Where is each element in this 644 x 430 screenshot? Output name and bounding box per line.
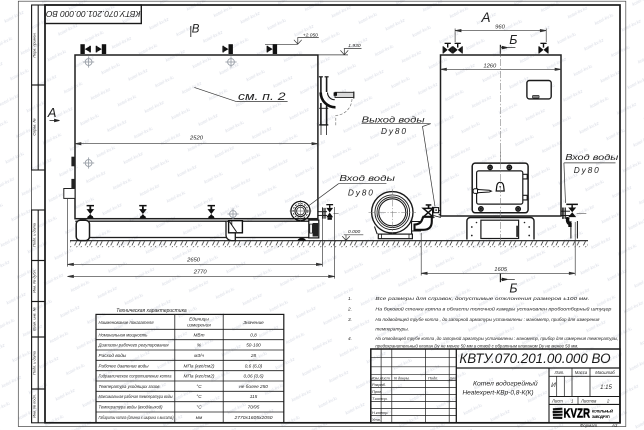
svg-text:Подп.: Подп.: [428, 375, 438, 380]
svg-text:Диапазон рабочего регулировани: Диапазон рабочего регулирования: [98, 343, 169, 348]
svg-text:2770: 2770: [193, 270, 208, 276]
svg-text:KVZR: KVZR: [564, 405, 591, 420]
svg-text:Инв. № дубл.: Инв. № дубл.: [33, 269, 37, 292]
svg-text:Наименование показателя: Наименование показателя: [99, 320, 154, 325]
svg-text:МПа (кгс/см2): МПа (кгс/см2): [184, 363, 215, 368]
svg-text:960: 960: [495, 24, 505, 30]
svg-text:0.000: 0.000: [348, 229, 361, 235]
svg-text:Техническая характеристика: Техническая характеристика: [116, 308, 187, 314]
svg-text:Пров.: Пров.: [372, 389, 382, 394]
svg-text:Температура воды (вход/выход): Температура воды (вход/выход): [99, 405, 163, 410]
svg-text:2520: 2520: [189, 136, 204, 142]
svg-text:На подводящей трубе котла , д: На подводящей трубе котла , до запорной …: [375, 316, 599, 322]
svg-text:не более 250: не более 250: [239, 384, 268, 389]
svg-text:Т.контр.: Т.контр.: [372, 396, 388, 401]
svg-text:0,06 (0,6): 0,06 (0,6): [243, 374, 264, 379]
svg-text:1260: 1260: [483, 63, 497, 69]
svg-text:2650: 2650: [186, 258, 201, 264]
svg-text:°С: °С: [196, 405, 202, 410]
svg-text:Лист: Лист: [551, 399, 563, 404]
svg-text:4.: 4.: [348, 336, 352, 341]
svg-text:3.: 3.: [348, 317, 352, 322]
svg-text:Значение: Значение: [243, 320, 264, 325]
svg-text:Все размеры для справок, допус: Все размеры для справок, допустимые откл…: [375, 296, 589, 301]
svg-text:Изм.Лист: Изм.Лист: [372, 375, 391, 380]
svg-text:Утв.: Утв.: [372, 417, 381, 422]
svg-text:Разраб.: Разраб.: [372, 382, 386, 387]
svg-text:Вход воды: Вход воды: [565, 152, 618, 162]
svg-text:1.: 1.: [348, 296, 352, 301]
svg-text:Heatexpert-КВр-0,8-К(К): Heatexpert-КВр-0,8-К(К): [462, 390, 533, 397]
svg-text:Масштаб: Масштаб: [595, 370, 615, 375]
svg-text:2770х1605х2050: 2770х1605х2050: [233, 415, 272, 420]
svg-text:Инв. № подл.: Инв. № подл.: [33, 394, 37, 418]
svg-text:Номинальная мощность: Номинальная мощность: [99, 332, 148, 337]
svg-text:см. п. 2: см. п. 2: [238, 91, 286, 103]
svg-text:0,8: 0,8: [250, 332, 257, 337]
svg-text:Формат: Формат: [580, 423, 597, 428]
svg-text:70/95: 70/95: [248, 405, 260, 410]
svg-text:предохранительный клапан Dу н: предохранительный клапан Dу не менее 50 …: [375, 342, 578, 348]
svg-text:Лит.: Лит.: [554, 370, 565, 375]
svg-text:Б: Б: [509, 281, 517, 295]
svg-text:Максимальная рабочая температу: Максимальная рабочая температура воды: [99, 394, 173, 399]
svg-text:1605: 1605: [494, 267, 508, 273]
svg-text:Расход воды: Расход воды: [99, 353, 127, 358]
svg-text:°С: °С: [196, 384, 202, 389]
svg-text:Взам. инв. №: Взам. инв. №: [33, 307, 37, 330]
svg-text:Вход воды: Вход воды: [339, 173, 395, 183]
svg-text:°С: °С: [196, 394, 202, 399]
svg-text:N докум.: N докум.: [394, 375, 410, 380]
svg-text:Габариты котла (длинна х ширин: Габариты котла (длинна х ширина х высота…: [99, 415, 174, 420]
svg-text:Подп. и дата: Подп. и дата: [33, 351, 37, 375]
svg-text:2.: 2.: [347, 307, 352, 312]
svg-text:В: В: [192, 24, 200, 36]
svg-text:Температура уходящих газов: Температура уходящих газов: [99, 384, 161, 389]
svg-text:Подп. и дата: Подп. и дата: [33, 223, 37, 247]
svg-text:мм: мм: [196, 415, 203, 420]
svg-text:А3: А3: [611, 423, 618, 428]
svg-text:Дата: Дата: [449, 375, 456, 380]
svg-text:температуры.: температуры.: [375, 327, 409, 332]
svg-text:МПа (кгс/см2): МПа (кгс/см2): [184, 374, 215, 379]
svg-text:Котел водогрейный: Котел водогрейный: [473, 380, 538, 388]
svg-text:Н.контр.: Н.контр.: [372, 410, 388, 415]
svg-text:Б: Б: [509, 33, 517, 47]
svg-text:1: 1: [571, 399, 573, 404]
svg-text:Перв. примен.: Перв. примен.: [33, 32, 37, 57]
svg-text:Гидравлическое сопротивление к: Гидравлическое сопротивление котла: [99, 374, 172, 379]
svg-text:28: 28: [250, 353, 257, 358]
svg-text:КВТУ.070.201.00.000 ВО: КВТУ.070.201.00.000 ВО: [45, 9, 140, 19]
svg-text:Масса: Масса: [575, 370, 588, 375]
svg-text:Выход воды: Выход воды: [362, 114, 425, 124]
svg-text:1:15: 1:15: [600, 385, 612, 391]
svg-text:50-100: 50-100: [246, 343, 261, 348]
svg-text:Рабочее давление воды: Рабочее давление воды: [99, 363, 150, 368]
svg-text:115: 115: [250, 394, 258, 399]
svg-text:А: А: [481, 10, 491, 25]
svg-text:На отводящей трубе котла ,до з: На отводящей трубе котла ,до запорной ар…: [375, 335, 618, 341]
svg-text:Единицы: Единицы: [189, 317, 209, 322]
svg-text:измерения: измерения: [187, 323, 211, 328]
svg-text:А: А: [47, 105, 57, 120]
svg-text:%: %: [197, 343, 201, 348]
svg-text:Справ. №: Справ. №: [33, 118, 37, 135]
svg-text:КВТУ.070.201.00.000 ВО: КВТУ.070.201.00.000 ВО: [459, 351, 611, 366]
svg-text:ЗАВОД РЭП: ЗАВОД РЭП: [592, 414, 610, 419]
svg-text:И: И: [551, 382, 556, 389]
svg-text:На боковой стенке котла в обла: На боковой стенке котла в области топочн…: [375, 306, 611, 312]
svg-text:м3/ч: м3/ч: [194, 353, 204, 358]
svg-text:0,6 (6,0): 0,6 (6,0): [245, 363, 263, 368]
svg-text:МВт: МВт: [194, 332, 205, 337]
svg-text:Листов: Листов: [580, 399, 597, 404]
